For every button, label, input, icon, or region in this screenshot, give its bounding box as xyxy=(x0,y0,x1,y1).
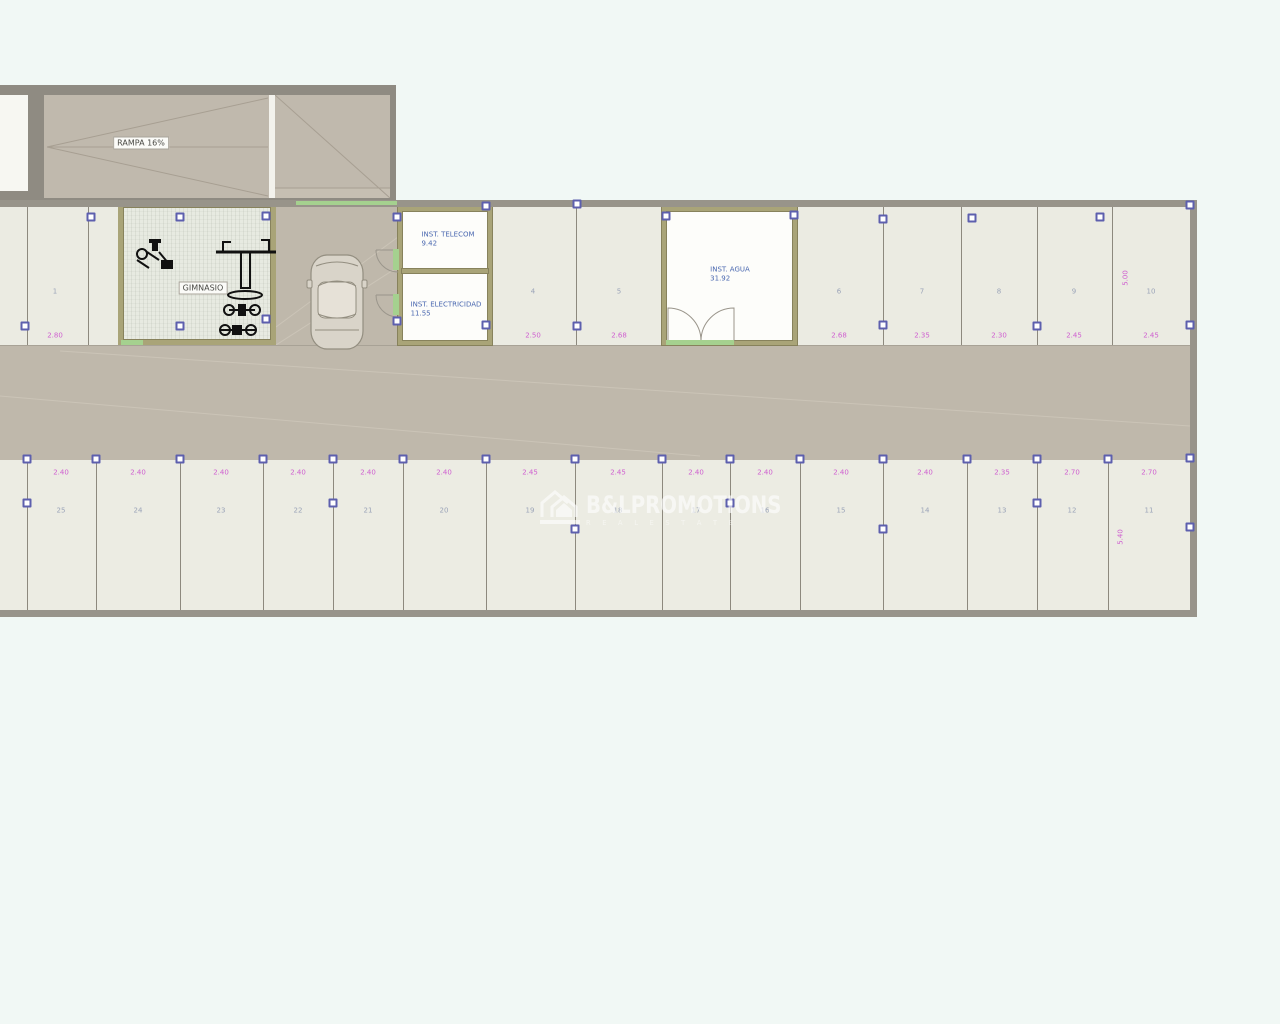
selection-grip xyxy=(1033,499,1042,508)
stall-dimension: 2.40 xyxy=(53,470,69,477)
stall-number: 25 xyxy=(57,508,66,515)
stall-divider xyxy=(403,460,404,610)
stall-number: 4 xyxy=(531,289,535,296)
selection-grip xyxy=(1104,455,1113,464)
stall-dimension: 2.40 xyxy=(833,470,849,477)
stall-number: 9 xyxy=(1072,289,1076,296)
stall-number: 19 xyxy=(526,508,535,515)
stall-divider xyxy=(180,460,181,610)
stall-number: 11 xyxy=(1145,508,1154,515)
stall-number: 17 xyxy=(692,508,701,515)
selection-grip xyxy=(879,455,888,464)
door-sill-highlight xyxy=(393,294,399,315)
selection-grip xyxy=(262,315,271,324)
selection-grip xyxy=(482,321,491,330)
selection-grip xyxy=(796,455,805,464)
stall-dimension: 2.50 xyxy=(525,333,541,340)
stall-divider xyxy=(662,460,663,610)
floor-plan-canvas: RAMPA 16% GIMNASIO xyxy=(0,0,1280,1024)
selection-grip xyxy=(482,455,491,464)
stall-dimension: 2.45 xyxy=(1143,333,1159,340)
stall-number: 23 xyxy=(217,508,226,515)
stall-divider xyxy=(1112,207,1113,345)
stall-number: 18 xyxy=(614,508,623,515)
stall-number: 14 xyxy=(921,508,930,515)
selection-grip xyxy=(1186,523,1195,532)
selection-grip xyxy=(790,211,799,220)
selection-grip xyxy=(259,455,268,464)
stall-dimension: 2.45 xyxy=(610,470,626,477)
parking-annotations-layer: 12.8042.5052.6862.6872.3582.3092.45102.4… xyxy=(0,0,1280,1024)
stall-number: 16 xyxy=(761,508,770,515)
stall-number: 21 xyxy=(364,508,373,515)
selection-grip xyxy=(399,455,408,464)
stall-dimension: 2.40 xyxy=(436,470,452,477)
stall-divider xyxy=(961,207,962,345)
door-sill-highlight xyxy=(393,249,399,270)
stall-dimension: 2.68 xyxy=(831,333,847,340)
stall-number: 8 xyxy=(997,289,1001,296)
selection-grip xyxy=(262,212,271,221)
stall-divider xyxy=(730,460,731,610)
stall-dimension: 2.70 xyxy=(1064,470,1080,477)
selection-grip xyxy=(176,455,185,464)
stall-dimension: 2.35 xyxy=(914,333,930,340)
selection-grip xyxy=(23,499,32,508)
stall-dimension: 2.40 xyxy=(917,470,933,477)
selection-grip xyxy=(21,322,30,331)
selection-grip xyxy=(658,455,667,464)
stall-number: 20 xyxy=(440,508,449,515)
bay-depth-dimension: 5.00 xyxy=(1123,270,1130,286)
selection-grip xyxy=(92,455,101,464)
selection-grip xyxy=(482,202,491,211)
stall-dimension: 2.68 xyxy=(611,333,627,340)
selection-grip xyxy=(329,455,338,464)
stall-dimension: 2.40 xyxy=(130,470,146,477)
selection-grip xyxy=(393,317,402,326)
stall-divider xyxy=(96,460,97,610)
stall-dimension: 2.30 xyxy=(991,333,1007,340)
selection-grip xyxy=(571,525,580,534)
stall-dimension: 2.45 xyxy=(522,470,538,477)
selection-grip xyxy=(726,455,735,464)
selection-grip xyxy=(87,213,96,222)
stall-divider xyxy=(1037,460,1038,610)
selection-grip xyxy=(573,200,582,209)
stall-dimension: 2.40 xyxy=(688,470,704,477)
stall-divider xyxy=(1108,460,1109,610)
selection-grip xyxy=(879,321,888,330)
stall-divider xyxy=(27,460,28,610)
stall-divider xyxy=(333,460,334,610)
selection-grip xyxy=(393,213,402,222)
stall-number: 12 xyxy=(1068,508,1077,515)
selection-grip xyxy=(879,525,888,534)
selection-grip xyxy=(176,213,185,222)
selection-grip xyxy=(23,455,32,464)
stall-dimension: 2.40 xyxy=(360,470,376,477)
stall-divider xyxy=(486,460,487,610)
selection-grip xyxy=(879,215,888,224)
stall-dimension: 2.40 xyxy=(213,470,229,477)
selection-grip xyxy=(1186,454,1195,463)
stall-number: 22 xyxy=(294,508,303,515)
stall-dimension: 2.40 xyxy=(757,470,773,477)
stall-dimension: 2.35 xyxy=(994,470,1010,477)
stall-number: 15 xyxy=(837,508,846,515)
selection-grip xyxy=(571,455,580,464)
stall-divider xyxy=(575,460,576,610)
stall-number: 6 xyxy=(837,289,841,296)
selection-grip xyxy=(1096,213,1105,222)
stall-number: 1 xyxy=(53,289,57,296)
selection-grip xyxy=(176,322,185,331)
selection-grip xyxy=(1033,455,1042,464)
selection-grip xyxy=(968,214,977,223)
stall-dimension: 2.45 xyxy=(1066,333,1082,340)
selection-grip xyxy=(963,455,972,464)
stall-divider xyxy=(263,460,264,610)
stall-number: 24 xyxy=(134,508,143,515)
stall-dimension: 2.80 xyxy=(47,333,63,340)
selection-grip xyxy=(1186,321,1195,330)
stall-dimension: 2.70 xyxy=(1141,470,1157,477)
selection-grip xyxy=(573,322,582,331)
stall-number: 13 xyxy=(998,508,1007,515)
stall-divider xyxy=(800,460,801,610)
stall-number: 10 xyxy=(1147,289,1156,296)
selection-grip xyxy=(662,212,671,221)
stall-number: 7 xyxy=(920,289,924,296)
door-sill-highlight xyxy=(296,201,397,205)
stall-divider xyxy=(967,460,968,610)
door-sill-highlight xyxy=(666,340,734,345)
stall-divider xyxy=(883,460,884,610)
selection-grip xyxy=(329,499,338,508)
selection-grip xyxy=(726,499,735,508)
stall-number: 5 xyxy=(617,289,621,296)
stall-dimension: 2.40 xyxy=(290,470,306,477)
door-sill-highlight xyxy=(121,340,143,345)
stall-divider xyxy=(88,207,89,345)
bay-depth-dimension: 5.40 xyxy=(1118,529,1125,545)
selection-grip xyxy=(1033,322,1042,331)
selection-grip xyxy=(1186,201,1195,210)
